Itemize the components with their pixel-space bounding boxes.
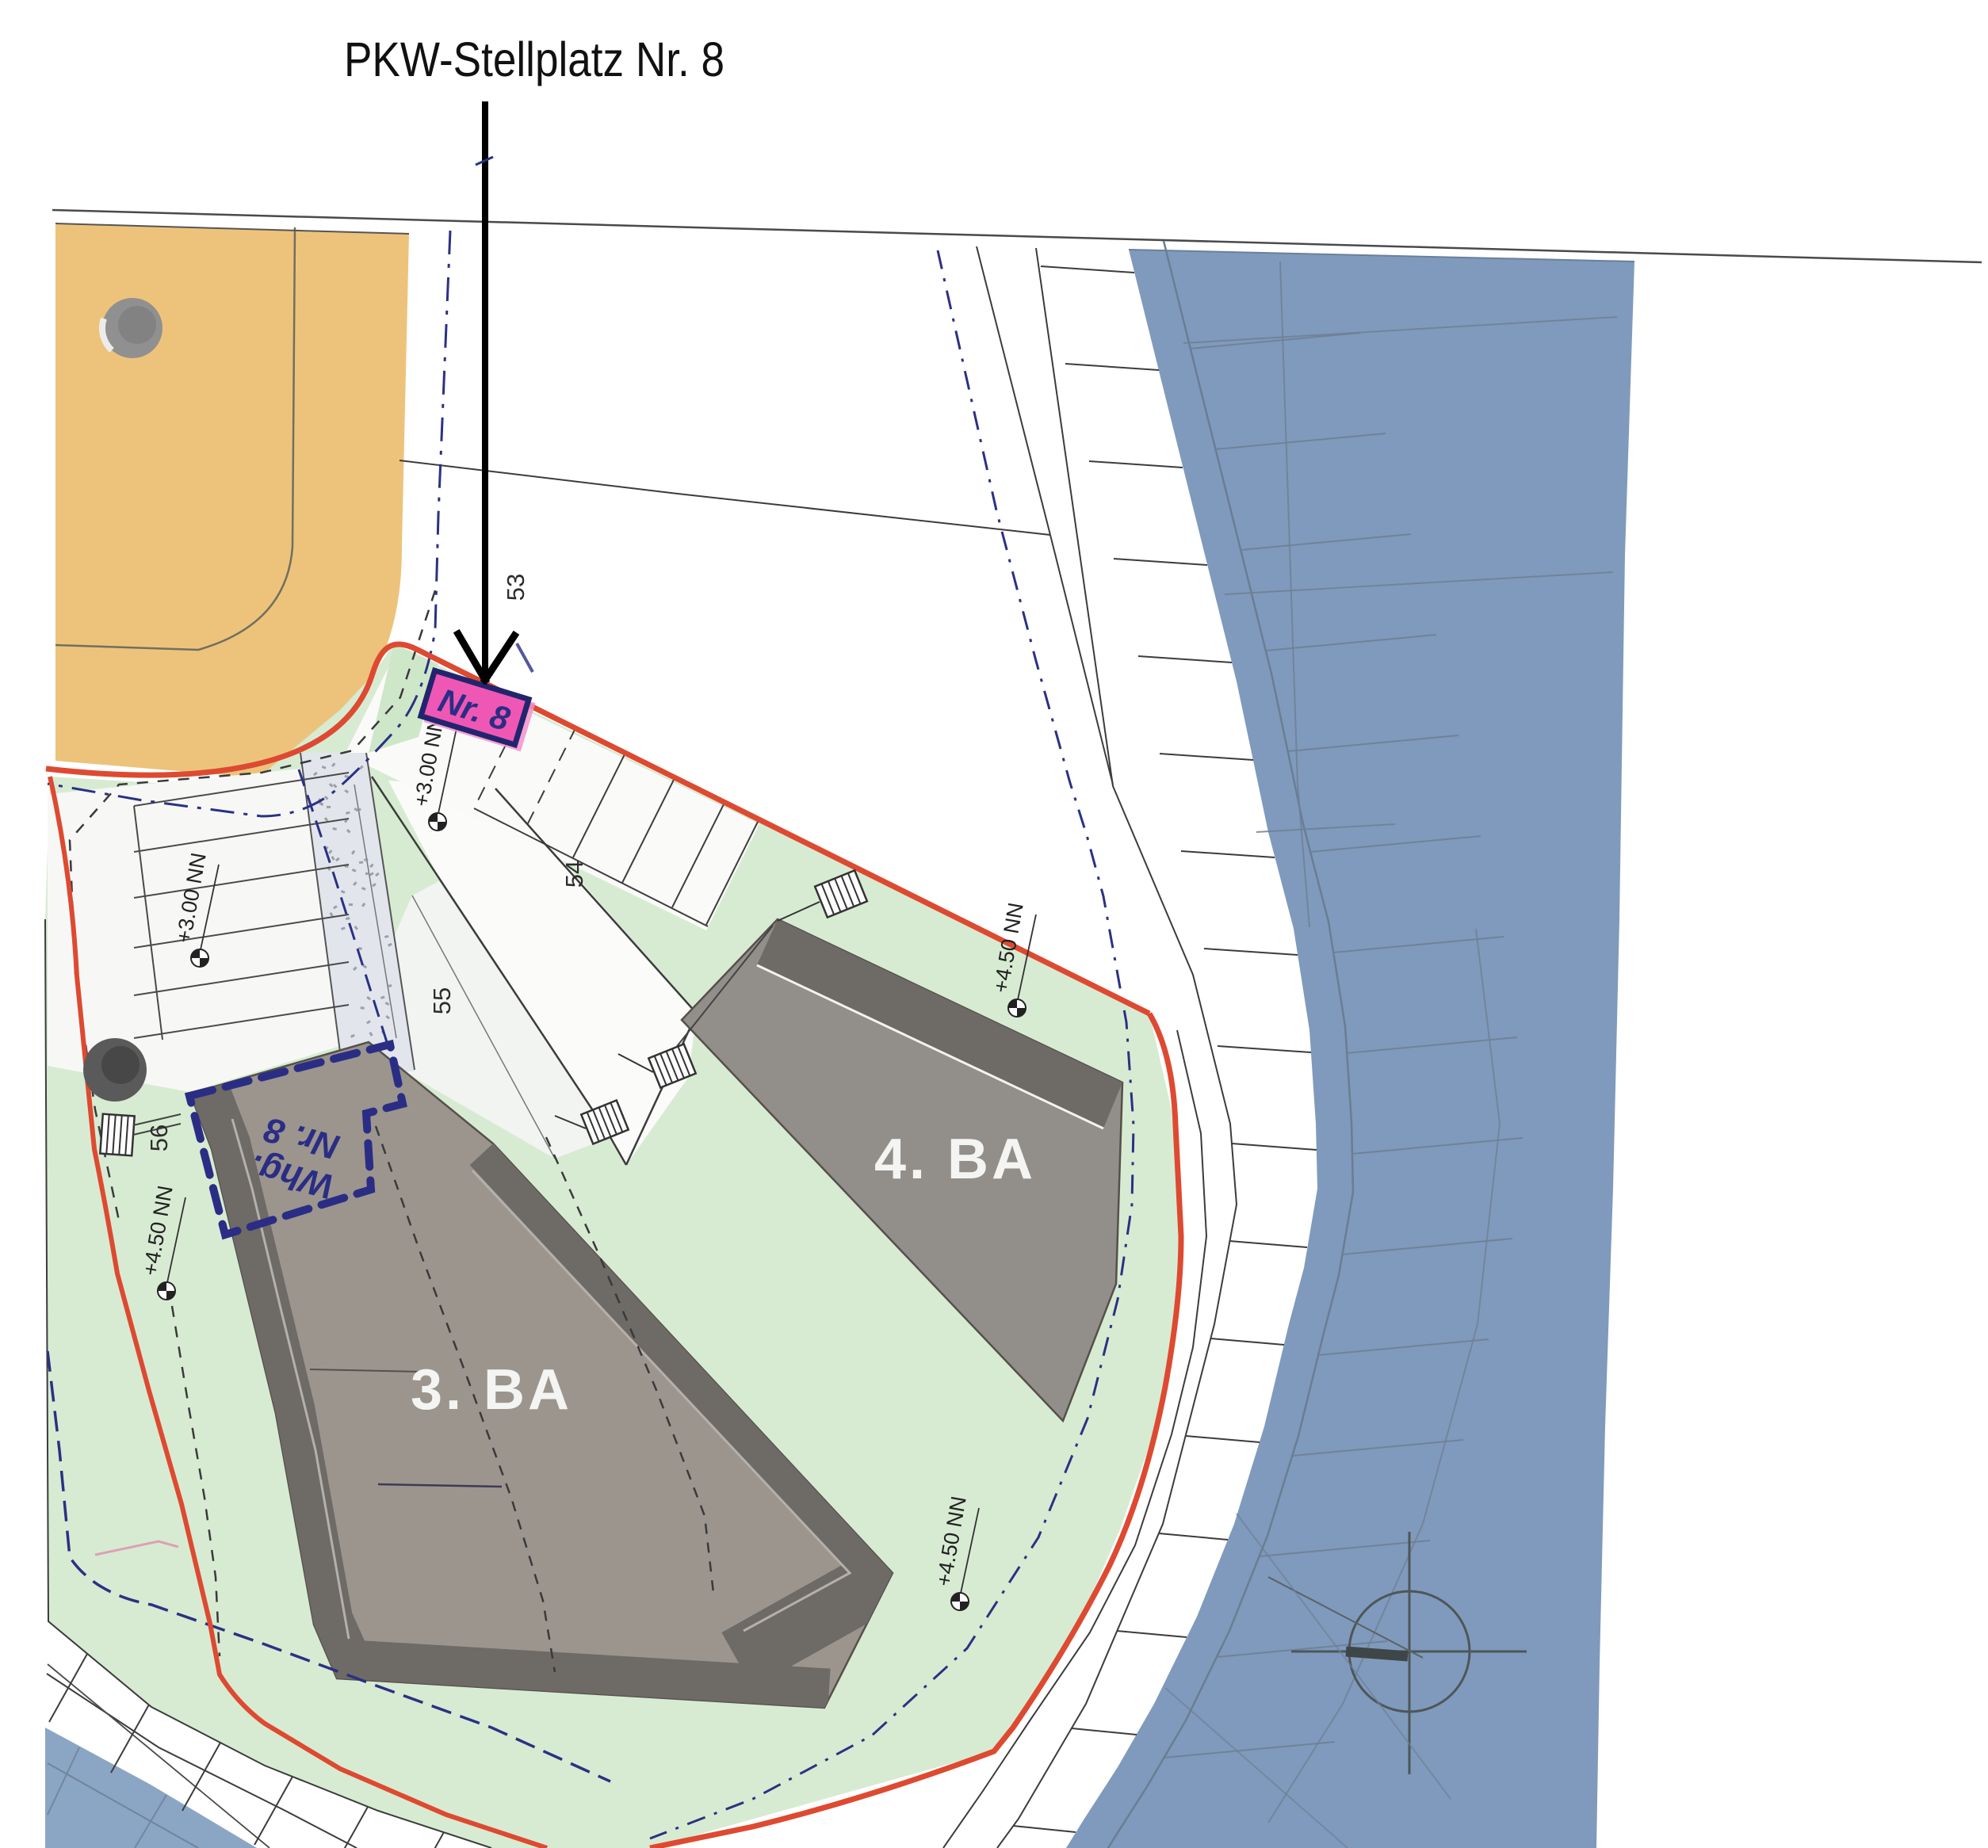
svg-text:53: 53 (502, 574, 529, 601)
svg-text:56: 56 (145, 1124, 173, 1151)
svg-text:3. BA: 3. BA (411, 1358, 572, 1422)
svg-text:PKW-Stellplatz Nr. 8: PKW-Stellplatz Nr. 8 (344, 32, 724, 86)
svg-text:4. BA: 4. BA (874, 1128, 1036, 1191)
svg-text:54: 54 (560, 861, 588, 888)
svg-text:55: 55 (428, 987, 456, 1014)
